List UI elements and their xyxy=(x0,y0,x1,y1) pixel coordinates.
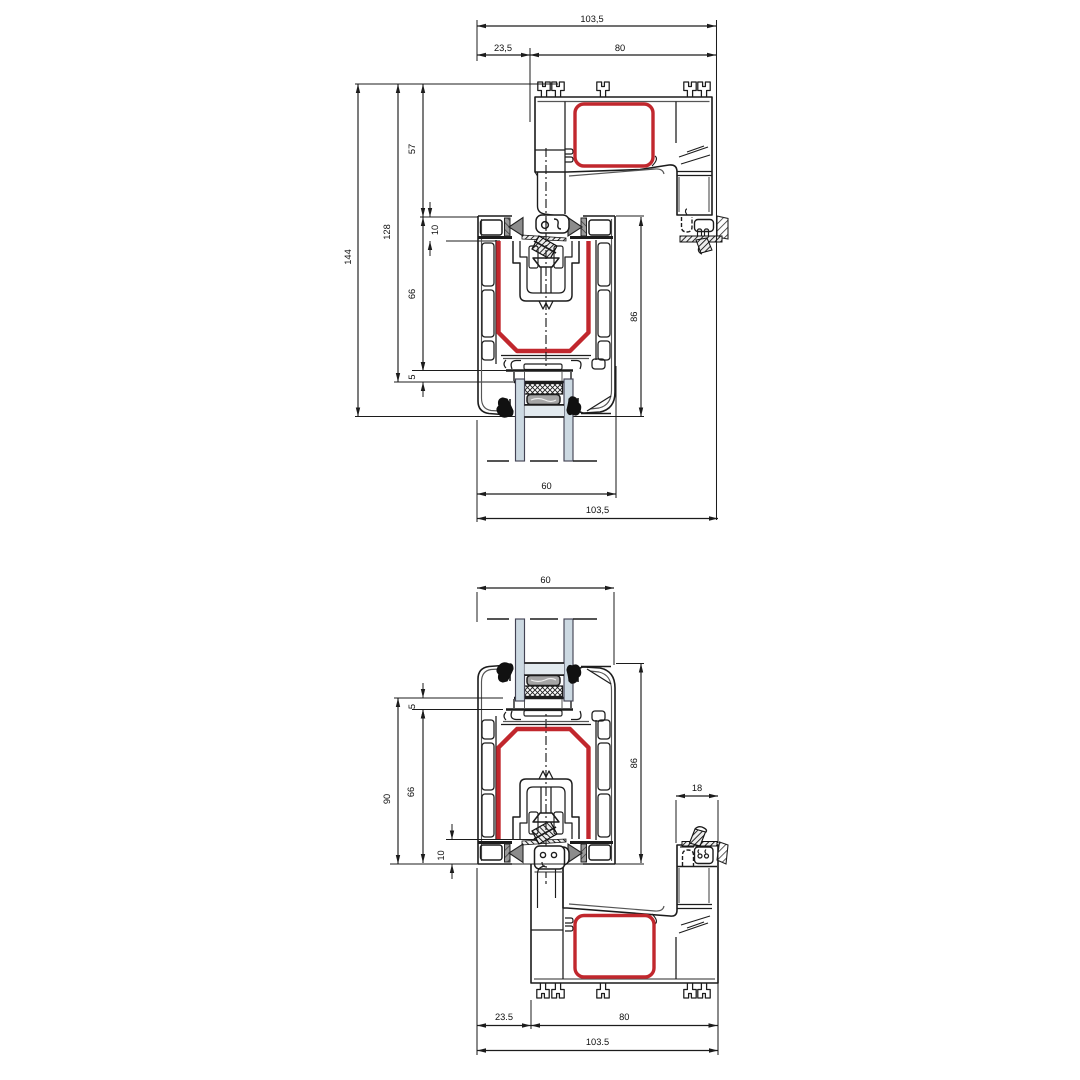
svg-text:86: 86 xyxy=(629,312,639,322)
svg-text:5: 5 xyxy=(407,374,417,379)
svg-text:66: 66 xyxy=(407,289,417,299)
svg-text:80: 80 xyxy=(615,43,625,53)
svg-text:90: 90 xyxy=(382,794,392,804)
svg-text:10: 10 xyxy=(436,850,446,860)
svg-text:23,5: 23,5 xyxy=(494,43,512,53)
svg-text:128: 128 xyxy=(382,224,392,240)
svg-text:66: 66 xyxy=(406,787,416,797)
svg-text:103,5: 103,5 xyxy=(580,14,603,24)
svg-text:144: 144 xyxy=(343,249,353,265)
svg-text:86: 86 xyxy=(629,758,639,768)
svg-text:57: 57 xyxy=(407,144,417,154)
svg-text:18: 18 xyxy=(692,783,702,793)
svg-text:5: 5 xyxy=(407,704,417,709)
svg-text:60: 60 xyxy=(540,575,550,585)
svg-text:23.5: 23.5 xyxy=(495,1012,513,1022)
svg-text:80: 80 xyxy=(619,1012,629,1022)
svg-text:103,5: 103,5 xyxy=(586,505,609,515)
svg-text:10: 10 xyxy=(430,225,440,235)
svg-text:103.5: 103.5 xyxy=(586,1037,609,1047)
svg-text:60: 60 xyxy=(541,481,551,491)
